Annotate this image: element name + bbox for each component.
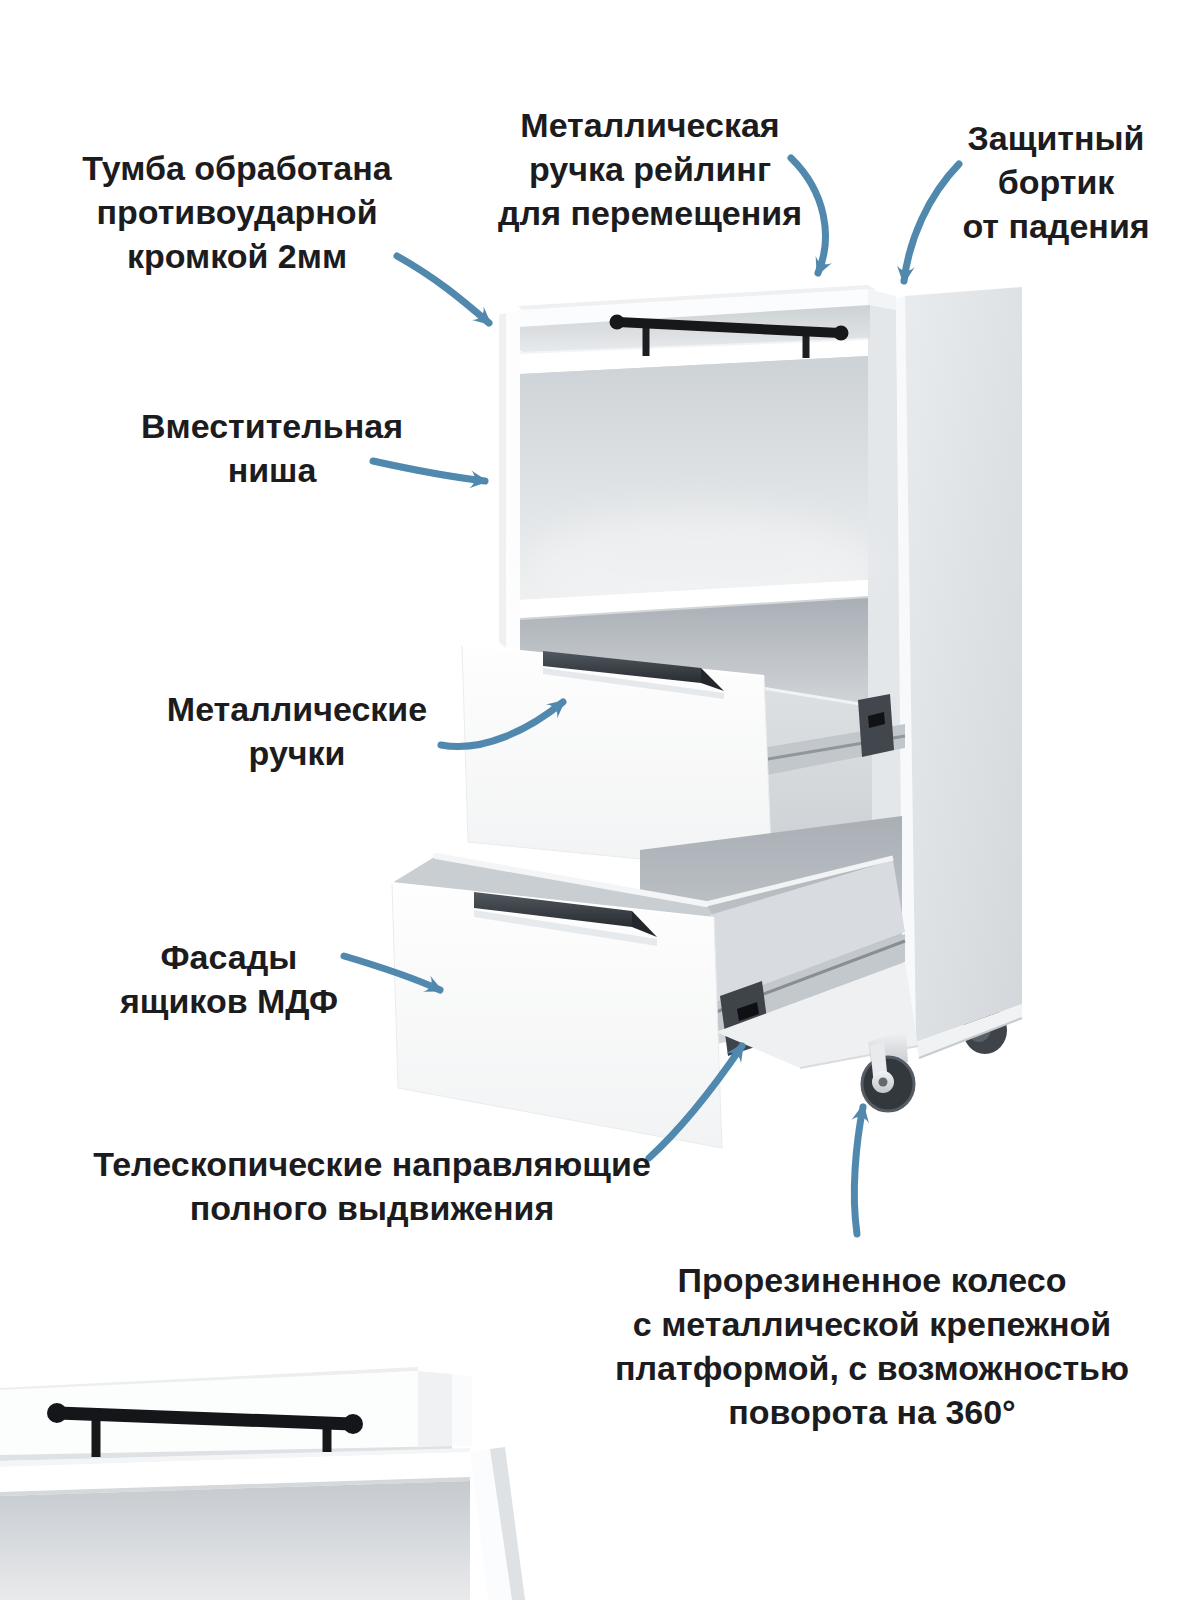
- label-fall-rim: Защитный бортик от падения: [962, 116, 1149, 248]
- label-metal-handles: Металлические ручки: [167, 687, 427, 775]
- arrow-fall-rim-icon: [904, 164, 959, 281]
- drawer-2: [392, 856, 918, 1148]
- label-telescopic-slides: Телескопические направляющие полного выд…: [93, 1142, 651, 1230]
- label-drawer-fronts: Фасады ящиков МДФ: [120, 935, 338, 1023]
- arrow-edge-protection-icon: [397, 256, 489, 323]
- niche: [520, 356, 870, 624]
- label-rail-handle: Металлическая ручка рейлинг для перемеще…: [498, 103, 802, 235]
- arrow-wheel-icon: [854, 1107, 863, 1234]
- product-infographic: Тумба обработана противоударной кромкой …: [0, 0, 1200, 1600]
- label-niche: Вместительная ниша: [141, 404, 403, 492]
- caster-wheel-front-icon: [862, 1030, 914, 1111]
- cabinet-top-closeup: [0, 1367, 525, 1600]
- cabinet-body: [392, 285, 1022, 1148]
- label-edge-protection: Тумба обработана противоударной кромкой …: [82, 146, 391, 278]
- label-wheel: Прорезиненное колесо с металлической кре…: [615, 1258, 1129, 1434]
